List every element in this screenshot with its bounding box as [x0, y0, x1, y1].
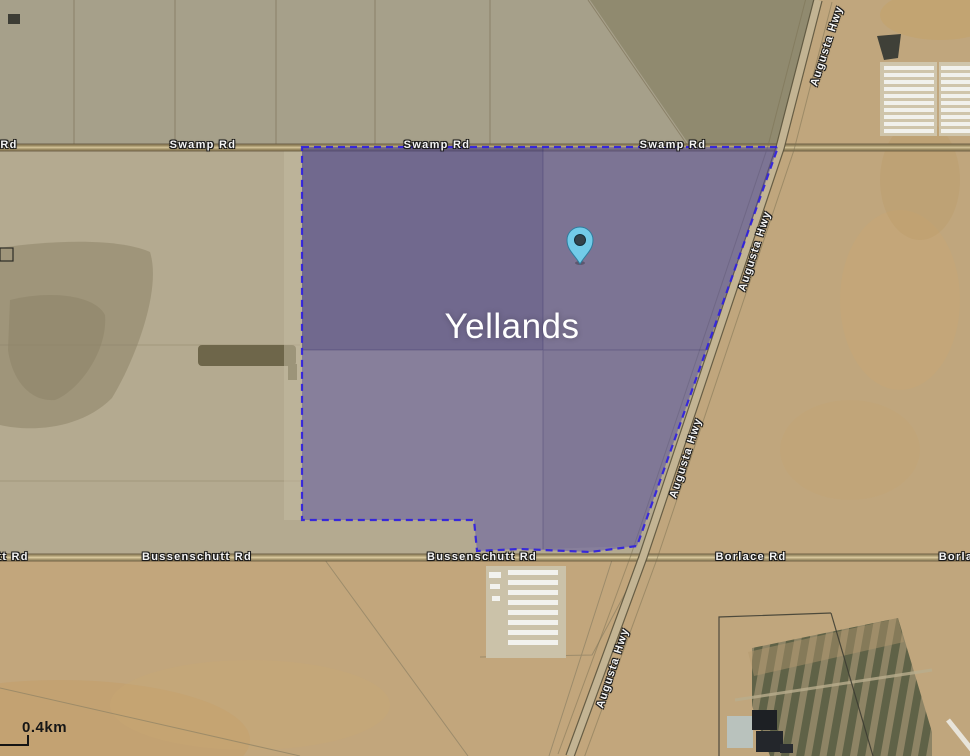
scale-label: 0.4km [22, 719, 67, 736]
satellite-map[interactable]: Yellands Rd Swamp Rd Swamp Rd Swamp Rd t… [0, 0, 970, 756]
pond-dark [756, 731, 783, 752]
pond-dark [752, 710, 777, 730]
bussenschutt-road [0, 554, 970, 561]
pond-light [727, 716, 753, 748]
field-edge-strip [284, 150, 302, 520]
scale-bar [0, 735, 29, 746]
small-structure [8, 14, 20, 24]
pond-dark [780, 744, 793, 753]
treeline [198, 345, 296, 366]
field-blotch [110, 660, 390, 750]
map-imagery [0, 0, 970, 756]
parcel-shade-nw [302, 147, 543, 350]
pin-hole [575, 235, 586, 246]
